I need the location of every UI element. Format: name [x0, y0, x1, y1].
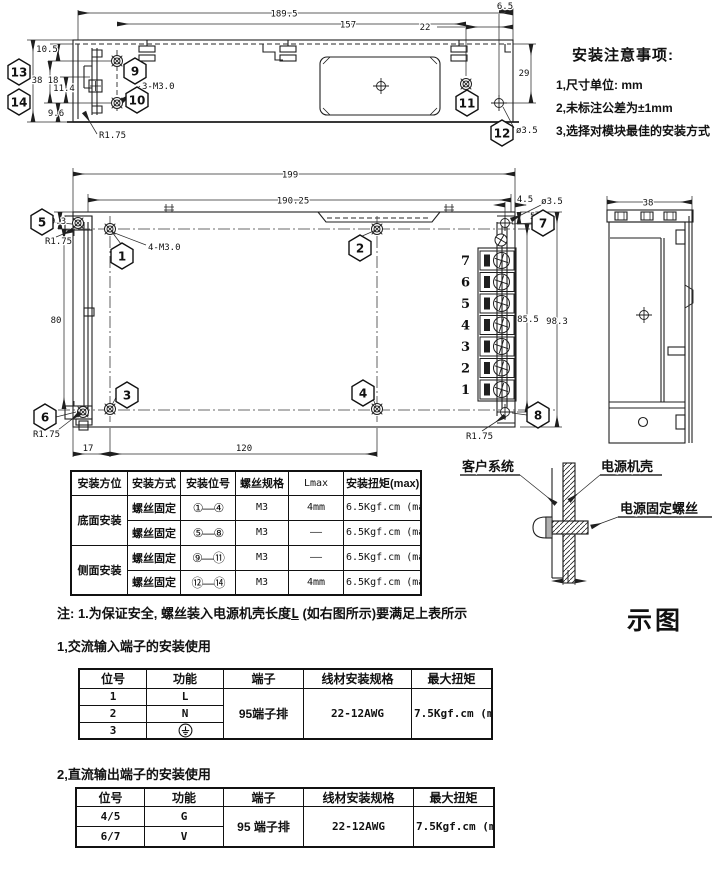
cell-pin-1: 1 [79, 688, 147, 705]
col-header-method: 安装方式 [128, 471, 181, 495]
cell-locations: ⑨—⑪ [181, 545, 236, 570]
table-row: 底面安装 螺丝固定 ①—④ M3 4mm 6.5Kgf.cm (max) [71, 495, 421, 520]
cell-terminal-type: 95 端子排 [224, 807, 304, 847]
balloon-13: 13 [8, 59, 30, 85]
ac-terminal-table: 位号 功能 端子 线材安装规格 最大扭矩 1 L 95端子排 22-12AWG … [78, 668, 493, 740]
installation-notes: 安装注意事项: 1,尺寸单位: mm 2,未标注公差为±1mm 3,选择对模块最… [556, 44, 717, 143]
col-header-location: 安装位号 [181, 471, 236, 495]
hole-dia-3-5-top: ø3.5 [541, 197, 563, 207]
col-header-torque: 安装扭矩(max) [344, 471, 422, 495]
cell-method: 螺丝固定 [128, 495, 181, 520]
side-view-dim-texts: 189.5 157 22 6.5 29 10.5 38 18 11.4 9.6 … [32, 2, 538, 141]
note-item-2: 2,未标注公差为±1mm [556, 97, 717, 120]
balloon-2: 2 [349, 235, 371, 261]
col-header-function: 功能 [147, 669, 224, 688]
terminal-block: 7 6 5 4 3 2 1 [461, 251, 514, 399]
cell-wire-spec: 22-12AWG [304, 688, 412, 739]
cell-fn-n: N [147, 705, 224, 722]
cell-torque: 6.5Kgf.cm (max) [344, 545, 422, 570]
cell-bottom-mount: 底面安装 [71, 495, 128, 545]
svg-text:8: 8 [534, 409, 542, 423]
table-row: 1 L 95端子排 22-12AWG 7.5Kgf.cm (max) [79, 688, 492, 705]
svg-text:4: 4 [359, 387, 367, 401]
illustration-caption: 示图 [627, 601, 683, 637]
svg-text:9: 9 [131, 65, 139, 79]
svg-text:14: 14 [11, 96, 28, 110]
side-view-dim-lines [27, 8, 536, 134]
end-view-outline [607, 210, 693, 443]
cell-max-torque: 7.5Kgf.cm (max) [412, 688, 493, 739]
svg-text:5: 5 [38, 216, 46, 230]
safety-note: 注: 1.为保证安全, 螺丝装入电源机壳长度L (如右图所示)要满足上表所示 [57, 603, 467, 622]
terminal-6-label: 6 [461, 276, 470, 291]
balloon-14: 14 [8, 89, 30, 115]
dim-r1-75-bottomright: R1.75 [466, 432, 493, 442]
svg-text:10: 10 [129, 94, 146, 108]
cell-pin-67: 6/7 [76, 827, 145, 847]
balloon-6: 6 [34, 404, 56, 430]
svg-text:12: 12 [494, 127, 511, 141]
balloon-8: 8 [527, 402, 549, 428]
svg-text:7: 7 [539, 217, 547, 231]
dim-r1-75: R1.75 [99, 131, 126, 141]
end-view-center-mark [636, 307, 652, 323]
dim-199: 199 [282, 171, 298, 181]
balloon-1: 1 [111, 243, 133, 269]
col-header-position-no: 位号 [79, 669, 147, 688]
technical-drawing-page: 189.5 157 22 6.5 29 10.5 38 18 11.4 9.6 … [0, 0, 717, 871]
cell-pin-2: 2 [79, 705, 147, 722]
dc-terminal-table: 位号 功能 端子 线材安装规格 最大扭矩 4/5 G 95 端子排 22-12A… [75, 787, 495, 848]
terminal-1-label: 1 [461, 383, 470, 398]
terminal-5-label: 5 [461, 297, 470, 312]
svg-text:1: 1 [118, 250, 126, 264]
col-header-max-torque: 最大扭矩 [414, 788, 495, 807]
col-header-terminal: 端子 [224, 788, 304, 807]
col-header-position-no: 位号 [76, 788, 145, 807]
dim-29: 29 [519, 69, 530, 79]
cell-torque: 6.5Kgf.cm (max) [344, 570, 422, 595]
cell-method: 螺丝固定 [128, 520, 181, 545]
svg-text:13: 13 [11, 66, 28, 80]
table-row: 4/5 G 95 端子排 22-12AWG 7.5Kgf.cm (max) [76, 807, 494, 827]
dim-22: 22 [420, 23, 431, 33]
cell-screw-size: M3 [236, 520, 289, 545]
mount-table-header-row: 安装方位 安装方式 安装位号 螺丝规格 Lmax 安装扭矩(max) [71, 471, 421, 495]
col-header-wire-spec: 线材安装规格 [304, 669, 412, 688]
length-symbol: L [291, 607, 299, 622]
cell-lmax: 4mm [289, 495, 344, 520]
balloon-4: 4 [352, 380, 374, 406]
col-header-max-torque: 最大扭矩 [412, 669, 493, 688]
cell-fn-g: G [145, 807, 224, 827]
col-header-position: 安装方位 [71, 471, 128, 495]
terminal-4-label: 4 [461, 319, 470, 334]
cell-terminal-type: 95端子排 [224, 688, 304, 739]
balloon-5: 5 [31, 209, 53, 235]
cell-method: 螺丝固定 [128, 545, 181, 570]
hole-dia-3-5: ø3.5 [516, 126, 538, 136]
svg-text:3: 3 [123, 389, 131, 403]
dim-85-5: 85.5 [517, 315, 539, 325]
thread-3-m3: 3-M3.0 [142, 82, 175, 92]
cell-method: 螺丝固定 [128, 570, 181, 595]
cell-max-torque: 7.5Kgf.cm (max) [414, 807, 495, 847]
balloon-7: 7 [532, 210, 554, 236]
dim-r1-75-topleft: R1.75 [45, 237, 72, 247]
cell-fn-v: V [145, 827, 224, 847]
safety-note-suffix: (如右图所示)要满足上表所示 [299, 606, 467, 621]
dim-189-5: 189.5 [270, 10, 297, 20]
note-item-3: 3,选择对模块最佳的安装方式 [556, 120, 717, 143]
dim-157: 157 [340, 21, 356, 31]
col-header-function: 功能 [145, 788, 224, 807]
mount-table: 安装方位 安装方式 安装位号 螺丝规格 Lmax 安装扭矩(max) 底面安装 … [70, 470, 422, 596]
notes-title: 安装注意事项: [556, 44, 717, 65]
terminal-2-label: 2 [461, 362, 470, 377]
terminal-7-label: 7 [461, 254, 470, 269]
terminal-3-label: 3 [461, 340, 470, 355]
col-header-screw: 螺丝规格 [236, 471, 289, 495]
ac-section-heading: 1,交流输入端子的安装使用 [57, 636, 211, 655]
dc-section-heading: 2,直流输出端子的安装使用 [57, 764, 211, 783]
dim-9-6: 9.6 [48, 109, 64, 119]
dim-120: 120 [236, 444, 252, 454]
svg-text:11: 11 [459, 97, 476, 111]
col-header-wire-spec: 线材安装规格 [304, 788, 414, 807]
cell-screw-size: M3 [236, 495, 289, 520]
cell-locations: ①—④ [181, 495, 236, 520]
ac-table-header-row: 位号 功能 端子 线材安装规格 最大扭矩 [79, 669, 492, 688]
cell-locations: ⑤—⑧ [181, 520, 236, 545]
cell-lmax: 4mm [289, 570, 344, 595]
cell-torque: 6.5Kgf.cm (max) [344, 520, 422, 545]
top-view-balloons: 1 2 3 4 5 6 7 8 [31, 209, 554, 430]
safety-note-prefix: 注: 1.为保证安全, 螺丝装入电源机壳长度 [57, 606, 291, 621]
balloon-10: 10 [126, 87, 148, 113]
svg-text:2: 2 [356, 242, 364, 256]
table-row: 侧面安装 螺丝固定 ⑨—⑪ M3 —— 6.5Kgf.cm (max) [71, 545, 421, 570]
dim-38: 38 [32, 76, 43, 86]
dim-80: 80 [51, 316, 62, 326]
balloon-3: 3 [116, 382, 138, 408]
cell-pin-3: 3 [79, 722, 147, 739]
top-view-drawing: 7 6 5 4 3 2 1 [0, 160, 717, 465]
dim-190-25: 190.25 [277, 197, 310, 207]
protective-earth-icon [178, 723, 193, 738]
label-fixing-screw: 电源固定螺丝 [620, 501, 698, 516]
mount-illustration: 客户系统 电源机壳 电源固定螺丝 [440, 455, 717, 605]
cell-lmax: —— [289, 545, 344, 570]
cell-side-mount: 侧面安装 [71, 545, 128, 595]
dim-98-3: 98.3 [546, 317, 568, 327]
balloon-12: 12 [491, 120, 513, 146]
dc-table-header-row: 位号 功能 端子 线材安装规格 最大扭矩 [76, 788, 494, 807]
cell-wire-spec: 22-12AWG [304, 807, 414, 847]
balloon-9: 9 [124, 58, 146, 84]
dim-10-5: 10.5 [36, 45, 58, 55]
dim-6-5: 6.5 [497, 2, 513, 12]
cell-torque: 6.5Kgf.cm (max) [344, 495, 422, 520]
col-header-terminal: 端子 [224, 669, 304, 688]
dim-r1-75-bottomleft: R1.75 [33, 430, 60, 440]
col-header-lmax: Lmax [289, 471, 344, 495]
label-customer-system: 客户系统 [462, 459, 514, 474]
cell-fn-earth [147, 722, 224, 739]
cell-lmax: —— [289, 520, 344, 545]
illustration-plates [533, 463, 588, 583]
cell-locations: ⑫—⑭ [181, 570, 236, 595]
dim-38-endview: 38 [643, 199, 654, 209]
svg-text:6: 6 [41, 411, 49, 425]
dim-17: 17 [83, 444, 94, 454]
note-item-1: 1,尺寸单位: mm [556, 74, 717, 97]
cell-pin-45: 4/5 [76, 807, 145, 827]
cell-screw-size: M3 [236, 545, 289, 570]
thread-4-m3: 4-M3.0 [148, 243, 181, 253]
cell-screw-size: M3 [236, 570, 289, 595]
label-power-case: 电源机壳 [601, 459, 653, 474]
cell-fn-l: L [147, 688, 224, 705]
dim-11-4: 11.4 [53, 84, 75, 94]
balloon-11: 11 [456, 90, 478, 116]
dim-4-5: 4.5 [517, 195, 533, 205]
